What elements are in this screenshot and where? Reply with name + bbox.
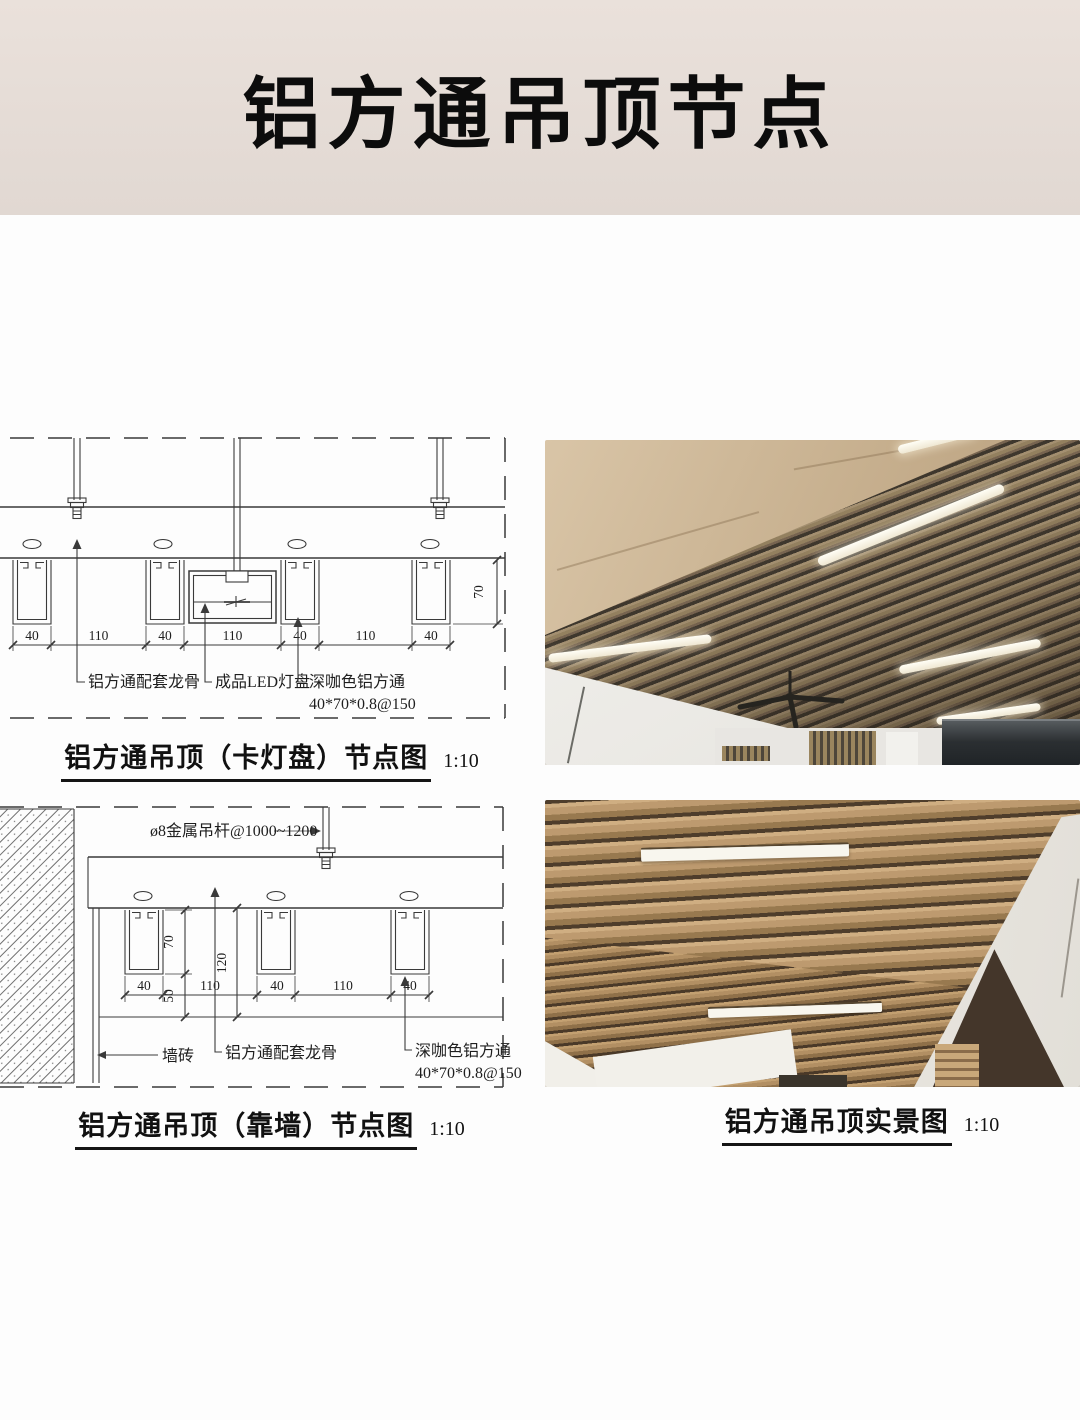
dimension-120: 120 <box>214 904 241 1021</box>
dim-label: 70 <box>471 585 486 599</box>
tube-spec-label: 40*70*0.8@150 <box>309 696 416 713</box>
dim-label: 110 <box>223 628 243 643</box>
dim-label: 70 <box>161 935 176 949</box>
caption-scale: 1:10 <box>964 1114 1000 1137</box>
hanger-rod <box>317 807 335 869</box>
caption-drawing1: 铝方通吊顶（卡灯盘）节点图 1:10 <box>0 736 540 782</box>
tube-spec-label: 40*70*0.8@150 <box>415 1065 522 1082</box>
keel-label: 铝方通配套龙骨 <box>88 673 200 691</box>
ceiling-seam <box>794 448 913 471</box>
dim-label: 40 <box>137 978 151 993</box>
dimension-70-50: 70 50 <box>161 906 192 1021</box>
dim-label: 110 <box>89 628 109 643</box>
light-bar <box>897 440 977 455</box>
wall-tile-label: 墙砖 <box>162 1047 194 1065</box>
tube-label: 深咖色铝方通 <box>309 673 405 691</box>
title-banner: 铝方通吊顶节点 <box>0 0 1080 215</box>
dimension-chain-horizontal: 40 110 40 110 40 110 40 <box>9 626 454 651</box>
caption-scale: 1:10 <box>429 1118 465 1141</box>
leader-led: 成品LED灯盘 <box>201 603 311 691</box>
node-diagram-wall-side: ø8金属吊杆@1000~1200 70 50 <box>0 790 540 1100</box>
leader-wall-tile: 墙砖 <box>97 1047 194 1065</box>
dim-label: 40 <box>424 628 438 643</box>
photo-ceiling-closeup <box>545 800 1080 1087</box>
light-bar <box>641 842 849 861</box>
keel-label: 铝方通配套龙骨 <box>225 1044 337 1062</box>
led-panel <box>189 571 276 623</box>
dim-label: 40 <box>270 978 284 993</box>
dim-label: 120 <box>214 953 229 974</box>
white-column <box>886 732 918 765</box>
caption-scale: 1:10 <box>443 750 479 773</box>
page-title: 铝方通吊顶节点 <box>242 52 837 164</box>
wall-hatch <box>0 809 74 1083</box>
leader-tube: 深咖色铝方通 40*70*0.8@150 <box>401 976 522 1082</box>
infographic-page: 铝方通吊顶节点 <box>0 0 1080 1420</box>
dark-band <box>779 1075 847 1087</box>
caption-text: 铝方通吊顶（靠墙）节点图 <box>75 1104 417 1150</box>
dim-label: 40 <box>25 628 39 643</box>
wall-tile-lines <box>88 857 99 1083</box>
hanger-label: ø8金属吊杆@1000~1200 <box>150 822 317 840</box>
leader-keel: 铝方通配套龙骨 <box>73 539 201 691</box>
leader-tube: 深咖色铝方通 40*70*0.8@150 <box>294 617 416 713</box>
hanger-rods <box>68 438 449 571</box>
slat-screen <box>809 731 876 765</box>
slat-screen <box>722 746 770 761</box>
tube-label: 深咖色铝方通 <box>415 1042 511 1060</box>
caption-drawing2: 铝方通吊顶（靠墙）节点图 1:10 <box>0 1104 540 1150</box>
dim-label: 110 <box>333 978 353 993</box>
dim-label: 110 <box>356 628 376 643</box>
caption-photo: 铝方通吊顶实景图 1:10 <box>593 1100 1080 1146</box>
dim-label: 40 <box>293 628 307 643</box>
keel-holes <box>23 540 439 549</box>
aluminum-tubes <box>13 560 450 624</box>
dim-label: 40 <box>158 628 172 643</box>
dimension-70: 70 <box>453 556 503 628</box>
caption-text: 铝方通吊顶实景图 <box>722 1100 952 1146</box>
wood-stairs <box>935 1044 979 1087</box>
hanger-leader: ø8金属吊杆@1000~1200 <box>150 822 321 840</box>
keel-holes <box>134 892 418 901</box>
caption-text: 铝方通吊顶（卡灯盘）节点图 <box>61 736 431 782</box>
dim-label: 110 <box>200 978 220 993</box>
led-label: 成品LED灯盘 <box>215 672 310 691</box>
dark-storefront <box>942 719 1080 765</box>
node-diagram-led-panel: 40 110 40 110 40 110 40 70 铝方通配套龙骨 成品LED… <box>0 430 540 730</box>
photo-ceiling-overview <box>545 440 1080 765</box>
